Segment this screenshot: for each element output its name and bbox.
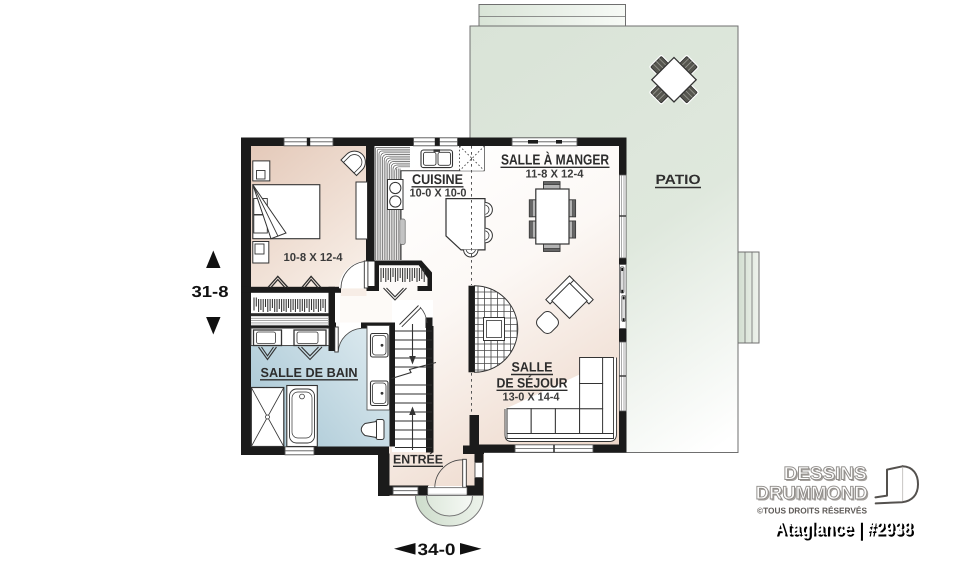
svg-text:ENTRÉE: ENTRÉE [393,452,443,467]
svg-text:10-0 X 10-0: 10-0 X 10-0 [410,188,467,200]
svg-text:DESSINS: DESSINS [784,463,867,484]
svg-text:13-0 X 14-4: 13-0 X 14-4 [503,392,561,404]
svg-text:Ataglance | #2938: Ataglance | #2938 [774,518,912,539]
svg-text:SALLE À MANGER: SALLE À MANGER [501,152,609,169]
svg-text:PATIO: PATIO [656,172,701,187]
svg-text:CUISINE: CUISINE [412,171,463,187]
svg-text:31-8: 31-8 [192,284,229,301]
svg-text:34-0: 34-0 [418,541,456,559]
svg-text:SALLE DE BAIN: SALLE DE BAIN [261,365,358,380]
svg-text:DE SÉJOUR: DE SÉJOUR [497,376,568,391]
svg-text:©TOUS DROITS RÉSERVÉS: ©TOUS DROITS RÉSERVÉS [757,506,867,516]
svg-text:10-8 X 12-4: 10-8 X 12-4 [284,252,344,264]
svg-text:DRUMMOND: DRUMMOND [756,482,868,503]
svg-text:11-8 X 12-4: 11-8 X 12-4 [526,169,585,181]
svg-text:SALLE: SALLE [512,360,553,375]
